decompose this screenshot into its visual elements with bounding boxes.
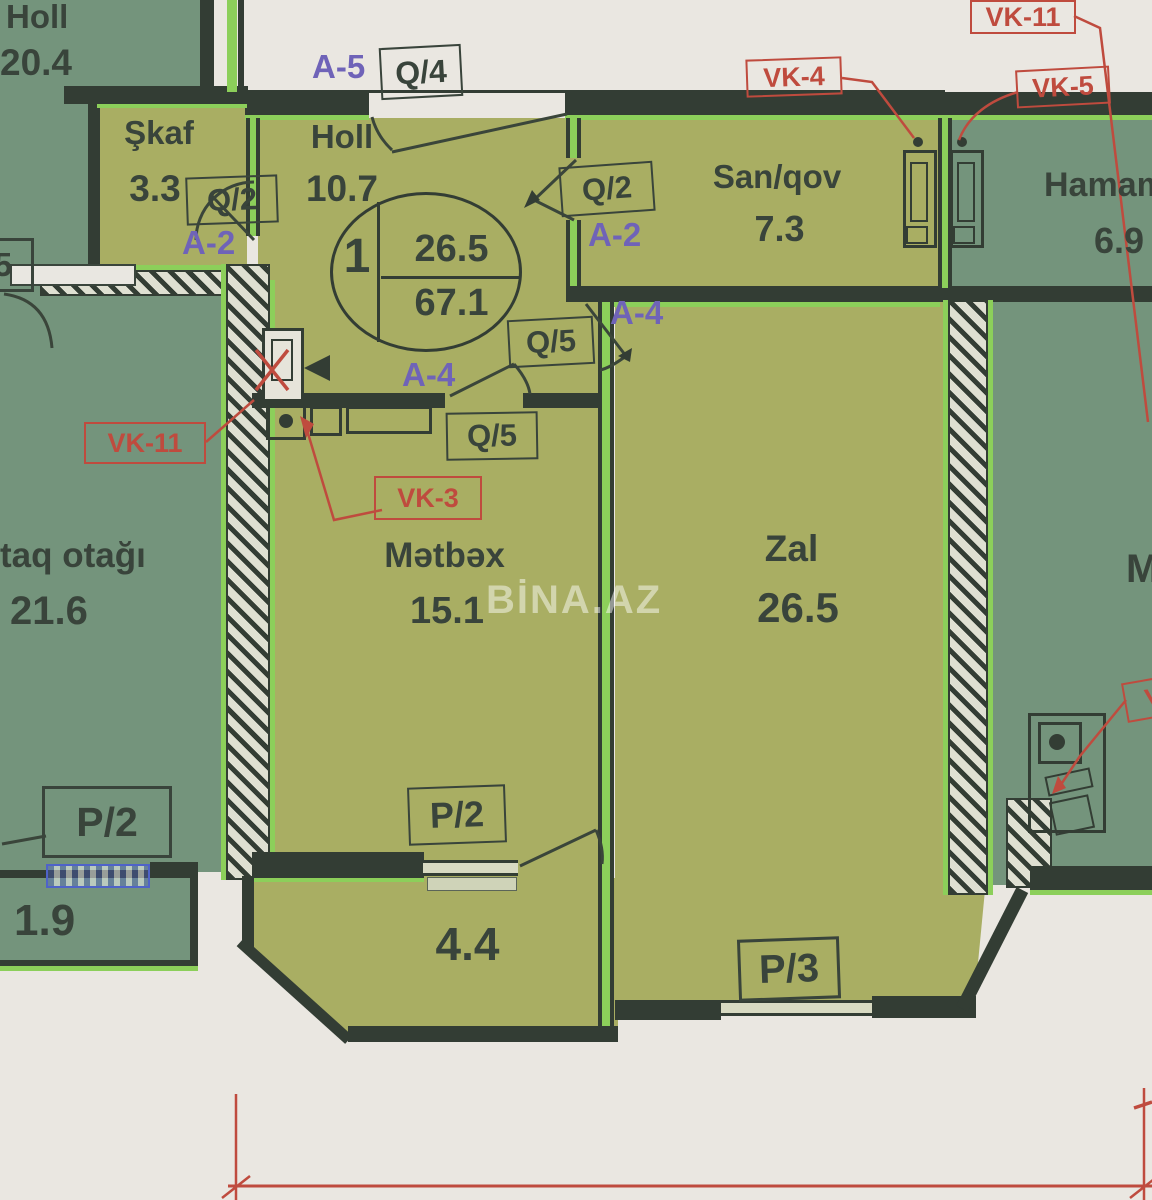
stamp-upper-area: 26.5 — [384, 230, 519, 270]
wall-kitchen-top-right — [523, 393, 599, 408]
kitchen-counter — [346, 406, 432, 434]
sanqov-area: 7.3 — [732, 210, 827, 248]
axis-a2-sanqov: A-2 — [588, 216, 641, 254]
yataq-area: 21.6 — [10, 590, 130, 632]
zal-window — [721, 1000, 872, 1016]
balcony-kitchen-area: 4.4 — [420, 920, 515, 968]
vent-box-small — [310, 406, 342, 436]
room-yataq-otagi — [0, 278, 232, 872]
hamam-name: Hamam — [1044, 168, 1152, 204]
door-tag-p2-left: P/2 — [42, 786, 172, 858]
hamam-area: 6.9 — [1094, 222, 1152, 260]
balcony-left-area: 1.9 — [14, 898, 109, 944]
stamp-divider-v — [377, 202, 380, 342]
vent-tag-vk11-top: VK-11 — [970, 0, 1076, 34]
vent-shaft-right-inner — [957, 162, 975, 222]
axis-a4-zal: A-4 — [610, 294, 663, 332]
axis-a2-shkaf: A-2 — [182, 224, 235, 262]
wall-shkaf-left — [88, 100, 100, 282]
neighbor-partial-name: M — [1126, 548, 1152, 590]
wall — [200, 0, 214, 92]
neighbor-shaft-dotbox — [1038, 722, 1082, 764]
wall-hatched-boundary-right — [948, 300, 988, 895]
axis-a5: A-5 — [312, 48, 365, 86]
wall-balcony-bottom — [348, 1026, 618, 1042]
door-tag-p3-zal: P/3 — [737, 936, 841, 1002]
wall-kitchen-bottom — [252, 852, 424, 878]
stamp-divider-h — [381, 276, 519, 279]
wall — [238, 0, 244, 92]
wall-highlight — [227, 0, 237, 92]
wall-bedroom-balcony — [150, 862, 198, 878]
neighbor-holl-area: 20.4 — [0, 44, 110, 83]
kitchen-radiator — [427, 877, 517, 891]
wall-highlight — [252, 878, 424, 882]
room-zal — [615, 300, 985, 1020]
wall-highlight — [97, 104, 247, 108]
shkaf-name: Şkaf — [104, 116, 214, 151]
corner-shaft-inner — [271, 339, 293, 381]
door-tag-q2-shkaf: Q/2 — [185, 174, 279, 225]
door-tag-p2-kitchen: P/2 — [407, 784, 507, 845]
vent-shaft-left-inner — [910, 162, 928, 222]
wall-zal-bottom-left — [615, 1000, 721, 1020]
vent-tag-vk4: VK-4 — [745, 56, 842, 97]
wall-highlight — [988, 300, 993, 895]
sanqov-name: San/qov — [682, 160, 872, 195]
watermark: BİNA.AZ — [486, 578, 662, 623]
vent-tag-vk3: VK-3 — [374, 476, 482, 520]
metbex-name: Mətbəx — [362, 538, 527, 575]
stamp-lower-area: 67.1 — [384, 284, 519, 324]
wall-highlight — [1030, 890, 1152, 895]
partition-sanqov-upper — [566, 118, 581, 158]
zal-area: 26.5 — [738, 586, 858, 630]
zal-name: Zal — [744, 530, 839, 569]
door-tag-q5-hall: Q/5 — [507, 316, 595, 368]
vent-box-dotted — [266, 404, 306, 440]
wall-neighbor-bottom — [1030, 866, 1152, 890]
neighbor-holl-name: Holl — [6, 0, 116, 35]
wall-highlight — [565, 115, 1152, 120]
door-tag-edge-partial: 5 — [0, 238, 34, 292]
kitchen-window — [423, 860, 518, 876]
vent-shaft-right-notch — [953, 226, 975, 244]
bedroom-radiator — [46, 864, 150, 888]
stamp-unit-number: 1 — [338, 232, 376, 282]
yataq-name: taq otağı — [0, 538, 185, 575]
partition-sanqov-lower — [566, 220, 581, 288]
door-tag-q2-sanqov: Q/2 — [558, 161, 655, 217]
door-tag-q5-kitchen: Q/5 — [446, 411, 539, 461]
vent-tag-vk5: VK-5 — [1015, 66, 1111, 109]
holl-area: 10.7 — [282, 170, 402, 209]
axis-a4-kitchen: A-4 — [402, 356, 455, 394]
holl-name: Holl — [282, 120, 402, 155]
floor-plan: 1 26.5 67.1 — [0, 0, 1152, 1200]
wall-top-left — [245, 90, 369, 115]
door-tag-q4: Q/4 — [379, 44, 464, 100]
partition-zal-left — [598, 302, 614, 1042]
wall-balcony-left — [242, 876, 254, 950]
balcony-left-outer-highlight — [0, 966, 198, 971]
vent-tag-vk11-left: VK-11 — [84, 422, 206, 464]
vent-shaft-left-notch — [906, 226, 928, 244]
